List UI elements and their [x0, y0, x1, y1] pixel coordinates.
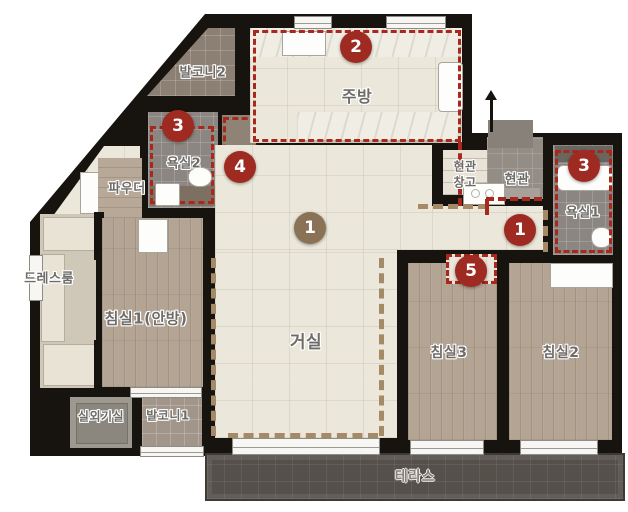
powder-counter [80, 172, 99, 214]
room-dressroom-label: 드레스룸 [24, 268, 74, 287]
opening-dashes [379, 258, 384, 436]
window [520, 440, 598, 455]
badge-bath2: 3 [162, 110, 194, 142]
entry-door-mat [488, 120, 533, 148]
room-bedroom1-label: 침실1(안방) [105, 308, 188, 329]
sink [155, 183, 180, 206]
badge-living: 1 [294, 212, 326, 244]
badge-kitchen: 2 [340, 31, 372, 63]
room-bath2-label: 욕실2 [167, 153, 201, 172]
floor-plan: 2 3 4 1 1 3 5 발코니2 주방 욕실2 파우더 현관 창고 현관 욕… [0, 0, 628, 512]
room-bedroom2-label: 침실2 [542, 342, 579, 362]
room-entry-storage-label: 현관 [453, 158, 476, 175]
path-dotted-red [485, 199, 489, 215]
room-balcony2-label: 발코니2 [180, 62, 227, 81]
opening-dashes [543, 210, 548, 252]
window [386, 16, 446, 29]
wardrobe [138, 219, 168, 253]
room-bedroom3-label: 침실3 [430, 342, 467, 362]
bedroom2-closet [550, 263, 613, 288]
room-terrace-label: 테라스 [395, 466, 435, 486]
dressroom-cabinet [43, 217, 95, 251]
room-kitchen-label: 주방 [342, 83, 372, 107]
window [232, 438, 380, 455]
opening-dashes [418, 204, 488, 209]
badge-hallway: 1 [504, 214, 536, 246]
room-entry-label: 현관 [505, 169, 530, 188]
entry-arrow-head [485, 90, 497, 100]
room-entry-storage-label2: 창고 [453, 174, 476, 191]
opening-dashes [228, 433, 378, 438]
room-powder-label: 파우더 [108, 178, 145, 197]
room-balcony1-label: 발코니1 [146, 407, 189, 424]
badge-bath1: 3 [568, 150, 600, 182]
window [130, 387, 202, 398]
entry-arrow [490, 98, 493, 132]
window [410, 440, 484, 455]
badge-bedroom3-door: 5 [455, 255, 487, 287]
room-outdoor-unit-label: 실외기실 [78, 408, 124, 425]
dressroom-cabinet [43, 344, 95, 386]
room-bath1-label: 욕실1 [566, 202, 600, 221]
opening-dashes [211, 258, 216, 436]
window [294, 16, 332, 29]
path-dotted-red [486, 197, 542, 201]
badge-pantry: 4 [224, 151, 256, 183]
window [140, 446, 204, 457]
room-living-label: 거실 [290, 328, 322, 353]
